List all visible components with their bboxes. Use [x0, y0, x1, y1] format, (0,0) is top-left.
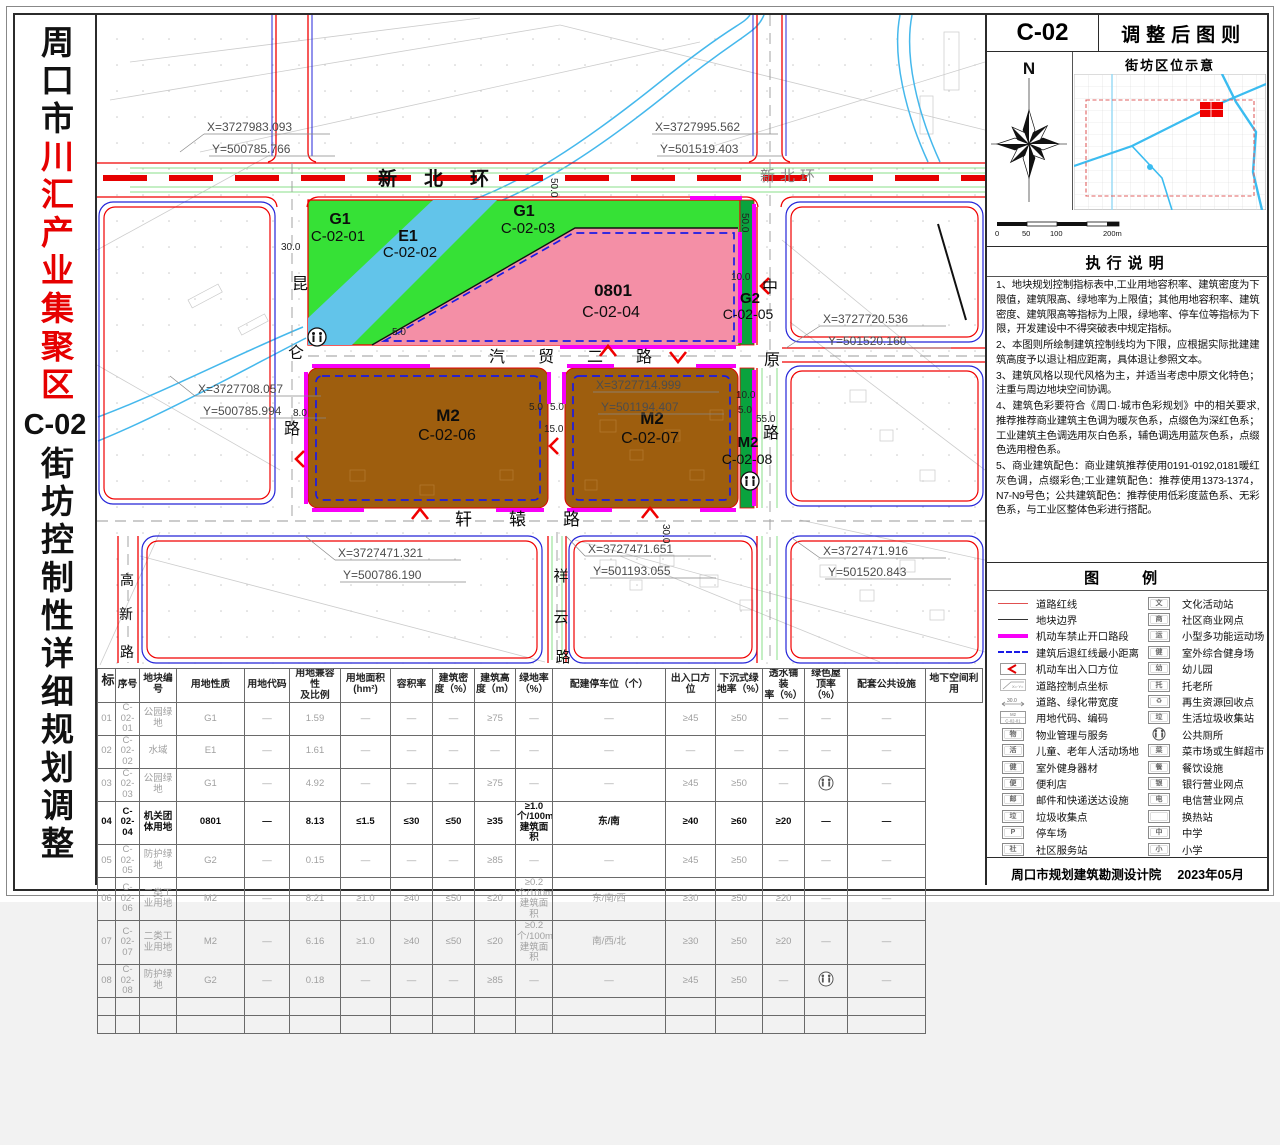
table-cell: ≥45 [666, 702, 716, 735]
scale-label: 0 [995, 229, 999, 238]
table-cell: 二类工业用地 [140, 877, 177, 921]
facility-icon: P [1002, 826, 1024, 839]
legend-item: 地块边界 [995, 611, 1139, 627]
sheet-title-code: C-02 [24, 409, 87, 442]
column-header: 用地性质 [177, 669, 245, 703]
facility-icon: 托 [1148, 679, 1170, 692]
legend-label: 公共厕所 [1182, 727, 1223, 742]
table-cell: — [516, 735, 553, 768]
legend-label: 道路、绿化带宽度 [1036, 694, 1118, 709]
facility-icon: 社 [1002, 843, 1024, 856]
facility-icon: 运 [1148, 629, 1170, 642]
svg-text:C-02-01: C-02-01 [1005, 719, 1021, 724]
legend-label: 小学 [1182, 842, 1203, 857]
legend-section: 图 例 道路红线地块边界机动车禁止开口路段建筑后退红线最小距离机动车出入口方位X… [987, 563, 1268, 858]
sheet-title-strip: 周口市 川汇产业集聚区 C-02 街坊控制性详细规划调整 [15, 15, 97, 885]
table-cell: — [391, 702, 433, 735]
dim-label: 8.0 [293, 408, 307, 419]
legend-label: 垃圾收集点 [1036, 809, 1087, 824]
svg-text:新: 新 [119, 606, 133, 622]
table-row: 06C-02-06二类工业用地M2—8.21≥1.0≥40≤50≤20≥0.2个… [98, 877, 983, 921]
column-header: 用地兼容性 及比例 [290, 669, 341, 703]
road-label-xinbeihuan-east: 新北环 [760, 168, 820, 185]
table-cell [763, 997, 805, 1015]
column-header: 绿色屋 顶率（%） [805, 669, 848, 703]
table-cell [341, 997, 391, 1015]
table-cell: ≥20 [763, 877, 805, 921]
dim-label: 15.0 [544, 424, 564, 435]
svg-text:Y=501193.055: Y=501193.055 [593, 564, 671, 578]
table-cell: — [245, 964, 290, 997]
table-cell: — [245, 921, 290, 965]
table-cell: — [763, 845, 805, 878]
table-cell: — [848, 735, 926, 768]
svg-text:Y=500786.190: Y=500786.190 [343, 568, 422, 582]
table-cell: — [245, 801, 290, 845]
table-cell: — [763, 964, 805, 997]
legend-label: 邮件和快递送达设施 [1036, 792, 1129, 807]
table-cell: — [805, 735, 848, 768]
svg-text:云: 云 [553, 609, 568, 626]
table-cell [763, 1015, 805, 1033]
svg-text:X=3727471.321: X=3727471.321 [338, 546, 423, 560]
table-cell: C-02-03 [116, 768, 140, 801]
legend-label: 社区商业网点 [1182, 612, 1244, 627]
road-label-qimao: 汽贸二路 [489, 348, 685, 366]
legend-item: M2C-02-01用地代码、编码 [995, 710, 1139, 726]
column-header: 绿地率 （%） [516, 669, 553, 703]
road-label-xinbeihuan: 新北环 [378, 167, 516, 190]
right-panel: C-02 调整后图则 N [985, 15, 1266, 885]
zone-id: C-02-05 [723, 306, 774, 322]
legend-item: 邮邮件和快递送达设施 [995, 792, 1139, 808]
legend-label: 室外综合健身场 [1182, 645, 1254, 660]
legend-label: 机动车出入口方位 [1036, 661, 1118, 676]
column-header: 出入口方位 [666, 669, 716, 703]
table-row [98, 1015, 983, 1033]
svg-text:仑: 仑 [288, 344, 304, 362]
scale-label: 50 [1022, 229, 1030, 238]
table-cell [805, 997, 848, 1015]
svg-text:M2: M2 [1010, 713, 1016, 718]
table-cell: E1 [177, 735, 245, 768]
svg-text:X=3727708.057: X=3727708.057 [198, 382, 283, 396]
legend-label: 停车场 [1036, 825, 1067, 840]
table-cell: ≥50 [716, 702, 763, 735]
table-cell: 0.18 [290, 964, 341, 997]
legend-item: 小小学 [1141, 841, 1264, 857]
legend-label: 便利店 [1036, 776, 1067, 791]
table-cell [177, 997, 245, 1015]
legend-label: 托老所 [1182, 678, 1213, 693]
legend-label: 再生资源回收点 [1182, 694, 1254, 709]
facility-icon: 健 [1148, 646, 1170, 659]
table-cell: — [805, 877, 848, 921]
table-cell: C-02-06 [116, 877, 140, 921]
svg-text:Y=501519.403: Y=501519.403 [660, 142, 739, 156]
table-cell: — [848, 768, 926, 801]
design-org: 周口市规划建筑勘测设计院 [1011, 864, 1161, 883]
table-cell: 01 [98, 702, 116, 735]
table-cell: — [433, 735, 475, 768]
table-cell: 0.15 [290, 845, 341, 878]
table-cell [805, 1015, 848, 1033]
table-cell: — [805, 702, 848, 735]
table-cell: C-02-05 [116, 845, 140, 878]
legend-item: 菜菜市场或生鲜超市 [1141, 743, 1264, 759]
sheet-type-title: 调整后图则 [1099, 15, 1268, 51]
table-cell: ≥40 [666, 801, 716, 845]
table-cell: ≥30 [666, 877, 716, 921]
facility-icon: 餐 [1148, 761, 1170, 774]
dim-label: 10.0 [731, 272, 751, 283]
table-cell: ≥50 [716, 921, 763, 965]
zone-code: M2 [738, 434, 759, 451]
sheet-date: 2023年05月 [1177, 864, 1244, 883]
legend-item: 道路红线 [995, 595, 1139, 611]
table-cell [98, 997, 116, 1015]
column-header: 用地面积 (hm²) [341, 669, 391, 703]
table-cell [475, 997, 516, 1015]
table-cell: ≥40 [391, 921, 433, 965]
svg-text:X=3727714.999: X=3727714.999 [596, 378, 681, 392]
table-cell: — [553, 735, 666, 768]
svg-text:Y=500785.994: Y=500785.994 [203, 404, 282, 418]
table-cell [805, 964, 848, 997]
column-header: 配套公共设施 [848, 669, 926, 703]
table-cell [290, 997, 341, 1015]
table-cell: 东/南 [553, 801, 666, 845]
table-cell: — [848, 801, 926, 845]
indicator-table-body: 01C-02-01公园绿地G1—1.59———≥75——≥45≥50———02C… [98, 702, 983, 1033]
svg-text:昆: 昆 [292, 276, 308, 293]
table-cell [553, 997, 666, 1015]
svg-text:X=3727983.093: X=3727983.093 [207, 120, 292, 134]
table-cell: 南/西/北 [553, 921, 666, 965]
table-cell: 07 [98, 921, 116, 965]
table-cell: — [341, 964, 391, 997]
table-cell: ≤20 [475, 921, 516, 965]
table-cell [666, 1015, 716, 1033]
table-row [98, 997, 983, 1015]
legend-label: 室外健身器材 [1036, 760, 1098, 775]
table-cell: ≤1.5 [341, 801, 391, 845]
indicator-table-panel: 地块控制指标 序号 地块编号 用地性质 用地代码 用地兼容性 及比例 用地面积 … [97, 668, 985, 887]
zone-code: G1 [513, 203, 534, 220]
table-cell: G1 [177, 768, 245, 801]
legend-item: 建筑后退红线最小距离 [995, 644, 1139, 660]
table-cell [290, 1015, 341, 1033]
table-cell: 02 [98, 735, 116, 768]
table-cell: — [391, 845, 433, 878]
table-cell: 8.13 [290, 801, 341, 845]
legend-label: 建筑后退红线最小距离 [1036, 645, 1139, 660]
table-cell: ≥50 [716, 768, 763, 801]
table-cell: — [516, 845, 553, 878]
svg-text:X=3727995.562: X=3727995.562 [655, 120, 740, 134]
table-cell: — [245, 877, 290, 921]
table-cell: — [433, 845, 475, 878]
legend-label: 生活垃圾收集站 [1182, 710, 1254, 725]
table-cell: — [245, 768, 290, 801]
north-label: N [1023, 59, 1035, 78]
legend-label: 换热站 [1182, 809, 1213, 824]
table-cell [666, 997, 716, 1015]
facility-icon: 活 [1002, 744, 1024, 757]
note-item: 1、地块规划控制指标表中,工业用地容积率、建筑密度为下限值，建筑限高、绿地率为上… [996, 279, 1259, 338]
table-cell [116, 1015, 140, 1033]
table-row: 02C-02-02水域E1—1.61——————————— [98, 735, 983, 768]
table-cell: G2 [177, 964, 245, 997]
table-row: 03C-02-03公园绿地G1—4.92———≥75——≥45≥50—— [98, 768, 983, 801]
right-panel-header: C-02 调整后图则 [987, 15, 1268, 52]
svg-text:X=3727471.651: X=3727471.651 [588, 542, 673, 556]
road-label-gaoxin: 高 新 路 [119, 572, 134, 660]
table-cell: ≥45 [666, 845, 716, 878]
table-cell [848, 997, 926, 1015]
legend-label: 社区服务站 [1036, 842, 1087, 857]
table-cell: ≥85 [475, 845, 516, 878]
scale-label: 100 [1050, 229, 1063, 238]
zone-id: C-02-03 [501, 220, 555, 237]
table-cell: G1 [177, 702, 245, 735]
legend-label: 机动车禁止开口路段 [1036, 628, 1129, 643]
legend-item: 健室外健身器材 [995, 759, 1139, 775]
facility-icon: 中 [1148, 826, 1170, 839]
notes-section: 执行说明 1、地块规划控制指标表中,工业用地容积率、建筑密度为下限值，建筑限高、… [987, 247, 1268, 563]
table-cell: ≥1.0 [341, 877, 391, 921]
table-cell: ≥30 [666, 921, 716, 965]
table-cell: 4.92 [290, 768, 341, 801]
legend-label: 道路控制点坐标 [1036, 678, 1108, 693]
legend-item: 中中学 [1141, 824, 1264, 840]
legend-item: 餐餐饮设施 [1141, 759, 1264, 775]
table-cell [716, 997, 763, 1015]
legend-title: 图 例 [987, 563, 1268, 591]
table-cell: ≥35 [475, 801, 516, 845]
legend-label: 餐饮设施 [1182, 760, 1223, 775]
public-toilet-icon [818, 775, 834, 791]
table-cell: C-02-08 [116, 964, 140, 997]
zone-code: 0801 [594, 281, 632, 300]
table-cell: — [763, 768, 805, 801]
public-toilet-icon [308, 328, 326, 346]
table-cell: 8.21 [290, 877, 341, 921]
facility-icon: 文 [1148, 597, 1170, 610]
table-cell: ≥75 [475, 768, 516, 801]
dim-label: 30.0 [281, 242, 301, 253]
column-header: 地块编号 [140, 669, 177, 703]
legend-label: 用地代码、编码 [1036, 710, 1108, 725]
table-cell: — [391, 964, 433, 997]
dim-label: 5.0 [738, 405, 752, 416]
table-row-header: 地块控制指标 [98, 669, 116, 703]
facility-icon: 健 [1002, 761, 1024, 774]
road-control-point-icon: X=·Y= [1000, 679, 1026, 691]
table-cell: C-02-04 [116, 801, 140, 845]
table-cell: ≥0.2个/100m²建筑面积 [516, 921, 553, 965]
table-cell: C-02-07 [116, 921, 140, 965]
table-cell: — [341, 845, 391, 878]
facility-icon: 银 [1148, 777, 1170, 790]
legend-item: P停车场 [995, 824, 1139, 840]
table-cell: — [805, 921, 848, 965]
zoning-map-svg: G1 C-02-01 E1 C-02-02 G1 C-02-03 0801 C-… [97, 15, 985, 668]
table-cell [516, 1015, 553, 1033]
table-cell [245, 1015, 290, 1033]
legend-item: 托托老所 [1141, 677, 1264, 693]
dim-label: 10.0 [736, 390, 756, 401]
facility-icon: 菜 [1148, 744, 1170, 757]
svg-text:Y=501520.160: Y=501520.160 [828, 334, 907, 348]
legend-label: 地块边界 [1036, 612, 1077, 627]
table-cell: — [516, 768, 553, 801]
table-cell: — [848, 702, 926, 735]
dim-label: 50.0 [548, 178, 559, 198]
svg-text:祥: 祥 [553, 568, 568, 585]
table-cell [433, 1015, 475, 1033]
zone-id: C-02-07 [621, 430, 679, 447]
zone-code: E1 [398, 228, 418, 245]
table-cell: 防护绿地 [140, 964, 177, 997]
column-header: 建筑密 度（%） [433, 669, 475, 703]
legend-item: 垃垃圾收集点 [995, 808, 1139, 824]
table-cell: — [433, 702, 475, 735]
zoning-map: G1 C-02-01 E1 C-02-02 G1 C-02-03 0801 C-… [97, 15, 985, 668]
table-cell: ≤20 [475, 877, 516, 921]
legend-col-right: 文文化活动站商社区商业网点运小型多功能运动场健室外综合健身场幼幼儿园托托老所♻再… [1141, 595, 1264, 857]
column-header: 用地代码 [245, 669, 290, 703]
table-cell: — [805, 801, 848, 845]
note-item: 5、商业建筑配色：商业建筑推荐使用0191-0192,0181暖红灰色调，点缀彩… [996, 460, 1259, 519]
table-cell [391, 997, 433, 1015]
svg-text:X=3727471.916: X=3727471.916 [823, 544, 908, 558]
legend-label: 物业管理与服务 [1036, 727, 1108, 742]
table-cell [140, 997, 177, 1015]
facility-icon [1148, 810, 1170, 823]
legend-item: 商社区商业网点 [1141, 611, 1264, 627]
table-cell: ≥75 [475, 702, 516, 735]
table-cell [475, 1015, 516, 1033]
table-cell: ≤30 [391, 801, 433, 845]
table-row: 01C-02-01公园绿地G1—1.59———≥75——≥45≥50——— [98, 702, 983, 735]
table-cell: ≥50 [716, 964, 763, 997]
legend-item: 30.0道路、绿化带宽度 [995, 693, 1139, 709]
column-header: 建筑高 度（m） [475, 669, 516, 703]
svg-text:路: 路 [555, 649, 570, 666]
table-cell: 03 [98, 768, 116, 801]
table-cell: ≥60 [716, 801, 763, 845]
dim-label: 50.0 [739, 213, 750, 233]
scale-label: 200m [1103, 229, 1122, 238]
table-cell [553, 1015, 666, 1033]
table-cell: — [391, 768, 433, 801]
table-cell: — [433, 964, 475, 997]
table-cell [341, 1015, 391, 1033]
table-cell [716, 1015, 763, 1033]
zone-code: M2 [436, 406, 460, 425]
table-cell: ≤50 [433, 877, 475, 921]
svg-text:路: 路 [763, 424, 779, 442]
table-cell: — [848, 845, 926, 878]
table-cell: — [341, 735, 391, 768]
location-section: N [987, 52, 1268, 247]
scale-bar: 0 50 100 200m [995, 216, 1125, 240]
access-arrow-icon [1000, 663, 1026, 675]
table-cell: — [475, 735, 516, 768]
road-label-xiangyun: 祥 云 路 [553, 568, 570, 666]
table-cell: 水域 [140, 735, 177, 768]
svg-text:X=·Y=: X=·Y= [1012, 684, 1024, 689]
facility-icon: 小 [1148, 843, 1170, 856]
facility-icon: 便 [1002, 777, 1024, 790]
legend-item: 机动车出入口方位 [995, 661, 1139, 677]
dim-label: 55.0 [756, 414, 776, 425]
table-cell: — [848, 877, 926, 921]
legend-item: 文文化活动站 [1141, 595, 1264, 611]
location-title: 街坊区位示意 [1072, 52, 1268, 74]
facility-icon: 商 [1148, 613, 1170, 626]
table-cell: 二类工业用地 [140, 921, 177, 965]
table-cell: ≥45 [666, 768, 716, 801]
table-cell: — [433, 768, 475, 801]
zone-id: C-02-01 [311, 228, 365, 245]
indicator-table: 地块控制指标 序号 地块编号 用地性质 用地代码 用地兼容性 及比例 用地面积 … [97, 668, 983, 1034]
table-cell: — [848, 921, 926, 965]
minimap-highlight-block [1200, 102, 1223, 117]
table-cell: — [805, 845, 848, 878]
legend-item: 健室外综合健身场 [1141, 644, 1264, 660]
public-toilet-icon [818, 971, 834, 987]
table-cell: — [763, 735, 805, 768]
table-cell [805, 768, 848, 801]
table-cell: ≥50 [716, 845, 763, 878]
road-label-xuanyuan: 轩辕路 [455, 510, 617, 529]
zone-id: C-02-02 [383, 244, 437, 261]
table-cell [177, 1015, 245, 1033]
table-cell: 机关团体用地 [140, 801, 177, 845]
svg-text:路: 路 [284, 420, 300, 438]
facility-icon: 垃 [1002, 810, 1024, 823]
table-cell: 公园绿地 [140, 702, 177, 735]
block-code: C-02 [987, 15, 1099, 51]
table-cell [433, 997, 475, 1015]
sheet-title-part2: 街坊控制性详细规划调整 [39, 446, 72, 864]
wind-rose-icon [994, 109, 1063, 178]
legend-label: 幼儿园 [1182, 661, 1213, 676]
zone-id: C-02-06 [418, 427, 476, 444]
table-cell: 防护绿地 [140, 845, 177, 878]
svg-text:Y=500785.766: Y=500785.766 [212, 142, 291, 156]
table-cell [140, 1015, 177, 1033]
table-cell [98, 1015, 116, 1033]
notes-title: 执行说明 [987, 247, 1268, 276]
legend-item: 社社区服务站 [995, 841, 1139, 857]
svg-text:高: 高 [120, 572, 134, 588]
table-cell: ≥20 [763, 801, 805, 845]
legend-label: 文化活动站 [1182, 596, 1233, 611]
svg-text:中: 中 [762, 278, 778, 296]
table-cell: — [716, 735, 763, 768]
table-cell: 6.16 [290, 921, 341, 965]
table-cell: ≥45 [666, 964, 716, 997]
table-cell: — [763, 702, 805, 735]
legend-item: X=·Y=道路控制点坐标 [995, 677, 1139, 693]
table-cell: — [848, 964, 926, 997]
legend-label: 中学 [1182, 825, 1203, 840]
column-header: 地下空间利用 [926, 669, 983, 703]
table-cell: M2 [177, 921, 245, 965]
